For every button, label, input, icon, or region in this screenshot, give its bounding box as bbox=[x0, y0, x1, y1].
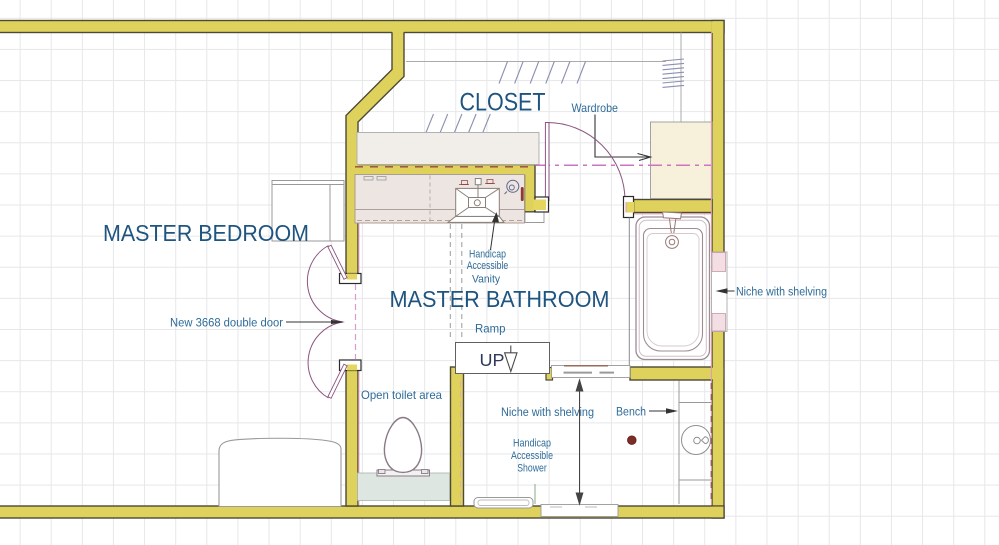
svg-text:Niche with shelving: Niche with shelving bbox=[501, 407, 594, 419]
svg-text:Ramp: Ramp bbox=[475, 322, 506, 336]
svg-text:Shower: Shower bbox=[517, 463, 547, 475]
svg-text:Vanity: Vanity bbox=[472, 274, 500, 286]
svg-text:Niche with shelving: Niche with shelving bbox=[736, 287, 827, 299]
svg-text:New 3668 double door: New 3668 double door bbox=[170, 318, 283, 330]
svg-text:Handicap: Handicap bbox=[513, 438, 551, 450]
svg-text:Accessible: Accessible bbox=[467, 260, 509, 272]
svg-text:MASTER BATHROOM: MASTER BATHROOM bbox=[390, 286, 610, 312]
svg-text:UP: UP bbox=[480, 350, 505, 370]
svg-text:Wardrobe: Wardrobe bbox=[572, 101, 619, 115]
svg-text:Accessible: Accessible bbox=[511, 450, 553, 462]
svg-text:Bench: Bench bbox=[616, 407, 646, 419]
svg-text:Handicap: Handicap bbox=[469, 249, 506, 261]
svg-text:CLOSET: CLOSET bbox=[460, 89, 546, 117]
svg-text:MASTER BEDROOM: MASTER BEDROOM bbox=[103, 220, 309, 246]
svg-text:Open toilet area: Open toilet area bbox=[361, 388, 442, 402]
